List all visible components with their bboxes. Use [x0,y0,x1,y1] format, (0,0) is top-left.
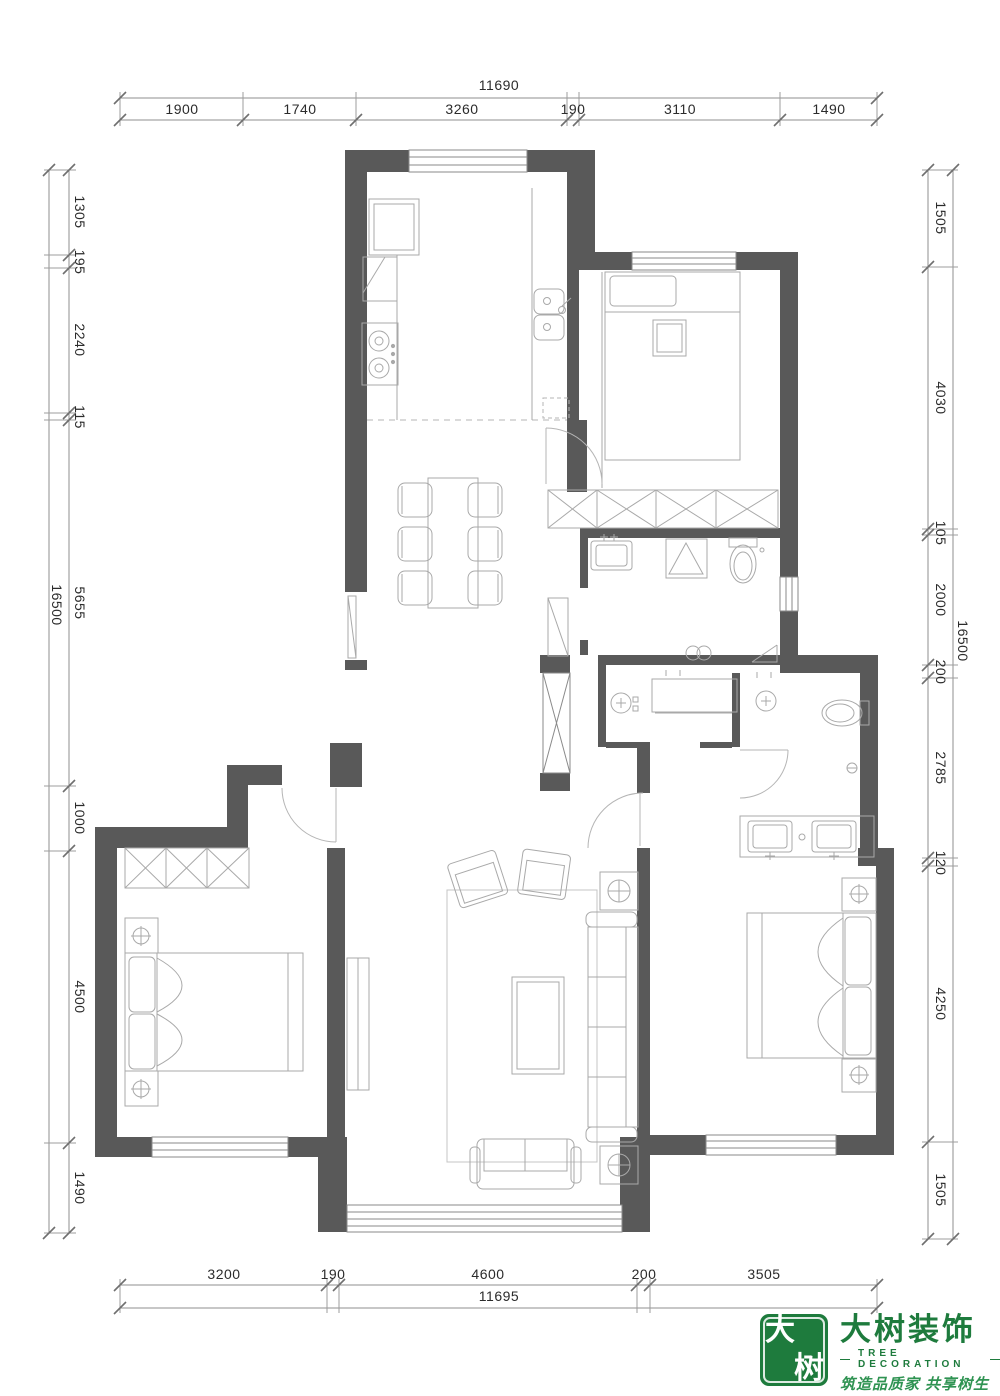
dim-top-segment-1: 1740 [283,101,316,117]
logo-seal-icon: 大 树 [760,1314,828,1386]
logo-seal-char-bottom: 树 [794,1352,824,1386]
company-logo: 大 树 大树装饰 — TREE DECORATION — 筑造品质家 共享树生活 [760,1314,1000,1396]
bedroom1 [125,848,303,1106]
dim-left-segment-5: 1000 [72,801,88,834]
dining-chair [398,483,432,517]
bathroom-window [780,577,798,611]
dim-right-segment-2: 105 [933,521,949,546]
dim-left-segment-4: 5655 [72,586,88,619]
dim-right-segment-4: 200 [933,660,949,685]
dim-right-segment-7: 4250 [933,987,949,1020]
dim-left-segment-6: 4500 [72,980,88,1013]
dim-right-total: 16500 [955,620,971,661]
tatami-bed [605,272,740,460]
hall [543,398,569,656]
vanity [740,816,874,860]
floor-drain-1 [611,693,631,713]
living-room-window [347,1205,622,1232]
master-bedroom-door [588,793,643,848]
dim-left-segment-3: 115 [72,405,88,429]
dim-left-segment-0: 1305 [72,195,88,228]
logo-dash-left: — [840,1354,850,1365]
floor-plan-drawing [0,0,1000,1396]
bedroom2-window [632,252,736,270]
kitchen-sink [534,289,571,340]
shower-tray [666,539,707,578]
dining-chair [468,527,502,561]
dim-top-segment-0: 1900 [165,101,198,117]
logo-brand-english: — TREE DECORATION — [840,1348,1000,1370]
dim-bottom-total: 11695 [479,1288,519,1304]
dim-top-segment-3: 190 [561,101,586,117]
dim-bottom-segment-2: 4600 [471,1266,504,1282]
floor-drain-2 [756,691,776,711]
logo-brand-name: 大树装饰 [840,1314,1000,1346]
shoe-cabinet [548,598,568,656]
logo-brand-english-text: TREE DECORATION [858,1348,982,1370]
master-bedroom [747,878,876,1092]
dining-chair [468,483,502,517]
floor-plan-page: 11690 1900 1740 3260 190 3110 1490 11695… [0,0,1000,1396]
stove [362,323,398,385]
armchair [517,849,571,900]
dim-bottom-segment-4: 3505 [747,1266,780,1282]
dim-left-total: 16500 [49,584,65,625]
dim-top-segment-4: 3110 [664,101,696,117]
hall-closet [548,490,778,528]
logo-slogan: 筑造品质家 共享树生活 [840,1373,1000,1396]
master-bedroom-window [706,1135,836,1155]
dim-right-segment-3: 2000 [933,583,949,616]
fridge [369,199,419,255]
dim-top-total: 11690 [479,77,519,93]
dim-top-segment-5: 1490 [812,101,845,117]
logo-dash-right: — [990,1354,1000,1365]
logo-text-block: 大树装饰 — TREE DECORATION — 筑造品质家 共享树生活 [840,1314,1000,1396]
armchair [447,849,509,908]
nightstand [125,1071,158,1106]
nightstand [842,878,876,911]
bedroom2 [548,272,778,528]
lightwell-window [543,673,570,773]
dim-right-segment-5: 2785 [933,751,949,784]
pocket-door [348,596,356,658]
logo-seal-char-top: 大 [765,1314,795,1348]
side-table [600,872,638,910]
bed [125,953,303,1071]
bedroom1-window [152,1137,288,1157]
range-hood [363,257,397,301]
dim-right-segment-0: 1505 [933,201,949,234]
dim-left-segment-2: 2240 [72,323,88,356]
shower-room [611,670,737,713]
bathroom1 [591,534,777,662]
kitchen-window [409,150,527,172]
tv-cabinet [347,958,369,1090]
coffee-table [512,977,564,1074]
nightstand [125,918,158,953]
dining-table [428,478,478,608]
kitchen [362,188,571,420]
bathroom1-sink [591,534,632,570]
accessory [847,763,857,773]
rug [447,890,597,1162]
master-bath [740,672,874,860]
master-bath-door [740,750,788,798]
dim-right-segment-1: 4030 [933,381,949,414]
dining-chair [398,527,432,561]
dimension-ticks [43,92,959,1314]
shower-counter [652,679,737,712]
wardrobe [125,848,249,888]
sofa [586,912,638,1142]
loveseat [470,1139,581,1189]
dim-right-segment-8: 1505 [933,1173,949,1206]
dimension-chains [44,92,958,1313]
dining-chair [398,571,432,605]
dim-right-segment-6: 120 [933,851,949,876]
dim-top-segment-2: 3260 [445,101,478,117]
dim-bottom-segment-0: 3200 [207,1266,240,1282]
dining-chair [468,571,502,605]
walls [95,150,894,1232]
living-room [347,849,638,1189]
toilet1 [729,538,764,583]
entry-cabinet-dashed [543,398,569,418]
bedroom1-door [282,788,336,842]
dim-bottom-segment-3: 200 [632,1266,657,1282]
dining-room [348,478,502,658]
counter-edge [397,188,532,420]
nightstand [842,1059,876,1092]
dim-left-segment-1: 195 [72,250,88,275]
dim-bottom-segment-1: 190 [321,1266,346,1282]
bed [747,913,876,1058]
dim-left-segment-7: 1490 [72,1171,88,1204]
